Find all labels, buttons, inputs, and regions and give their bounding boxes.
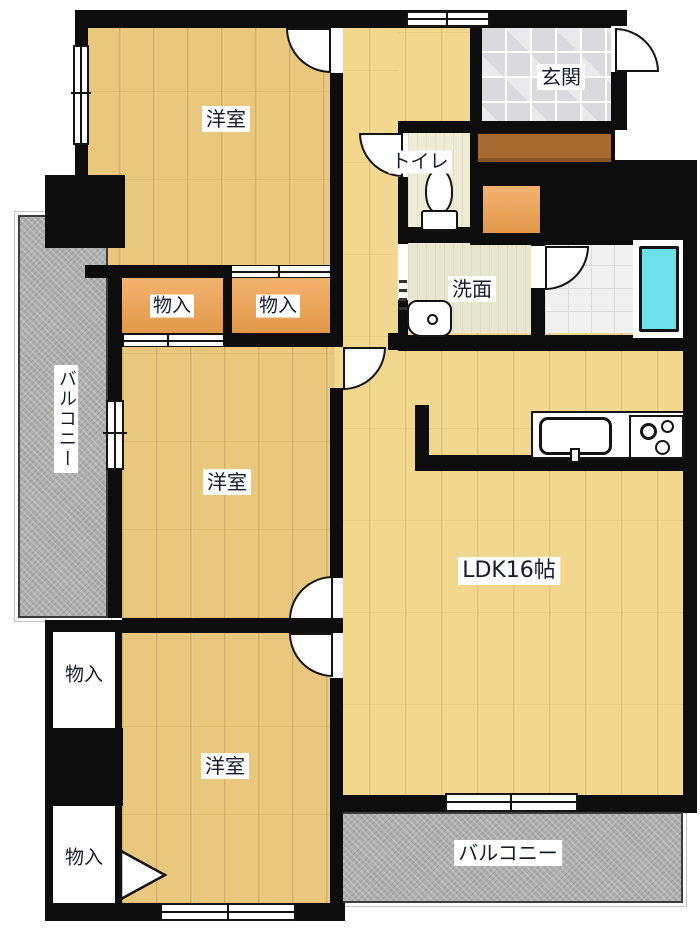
wall-mass-right: [613, 160, 697, 245]
stove-burner-3: [655, 440, 670, 455]
label-storage-bottom-upper: 物入: [62, 664, 106, 687]
window-bedroom-bottom-mullion: [227, 905, 229, 919]
toilet-bowl: [425, 168, 453, 214]
wall-mass-bottomleft: [45, 728, 123, 806]
wall-stub-washroom: [388, 333, 398, 350]
closet-door-triangle: [118, 848, 168, 902]
window-corridor-top-line: [408, 18, 488, 20]
window-bedroom-middle-tick: [103, 432, 127, 434]
door-arc-entrance: [615, 28, 659, 72]
storage-hall-floor: [483, 186, 540, 233]
wall-right: [683, 240, 697, 813]
wall-midroom-east-a: [330, 388, 343, 578]
floor-plan: 洋室 洋室 洋室 LDK16帖 玄関 トイレ 洗面 物入 物入 物入 物入 バル…: [0, 0, 700, 932]
label-ldk: LDK16帖: [458, 557, 560, 585]
washroom-door-dashes: [399, 280, 407, 314]
toilet-tank: [421, 210, 458, 231]
label-balcony-bottom: バルコニー: [454, 840, 562, 866]
tick-storage-top-left: [124, 340, 223, 342]
window-corridor-top-mullion: [446, 13, 448, 25]
kitchen-faucet: [570, 448, 580, 463]
wall-storagecol-top: [45, 620, 123, 632]
tick-storage-top-right-end: [278, 266, 280, 277]
washbasin-drain: [427, 314, 438, 325]
window-ldk-balcony-mullion: [510, 795, 512, 810]
wall-entrance-west: [470, 28, 482, 128]
label-bedroom-bottom: 洋室: [201, 753, 249, 779]
wall-top: [75, 10, 627, 28]
window-bedroom-top-left-line: [80, 47, 82, 143]
wall-corridor-west-a: [330, 72, 343, 268]
window-bedroom-top-left-tick: [71, 92, 91, 94]
wall-ldk-south-b: [578, 795, 697, 812]
tick-storage-top-right: [232, 271, 330, 273]
label-bedroom-top: 洋室: [202, 106, 250, 132]
doorway-bathroom: [531, 246, 545, 288]
label-storage-top-left: 物入: [150, 295, 194, 318]
label-storage-top-right: 物入: [256, 295, 300, 318]
label-storage-bottom-lower: 物入: [62, 847, 106, 870]
wall-ldk-south-a: [333, 795, 445, 812]
label-bedroom-middle: 洋室: [203, 469, 251, 495]
wall-toilet-top: [398, 121, 478, 133]
bathtub: [639, 246, 679, 332]
doorway-bedroom-top: [330, 28, 343, 73]
wall-botroom-east: [330, 678, 343, 903]
label-washroom: 洗面: [448, 276, 496, 302]
entrance-step: [478, 134, 611, 162]
wall-between-bedrooms: [122, 618, 343, 633]
label-toilet: トイレ: [388, 151, 451, 174]
tick-storage-top-left-end: [167, 335, 169, 346]
label-balcony-left: バルコニー: [54, 365, 78, 473]
window-bedroom-middle-line: [114, 402, 116, 468]
stove-burner-2: [661, 420, 674, 433]
wall-storage-divider: [223, 278, 232, 333]
label-entrance: 玄関: [537, 64, 585, 90]
stove-burner-1: [640, 423, 657, 440]
wall-mass-topleft: [45, 175, 125, 248]
